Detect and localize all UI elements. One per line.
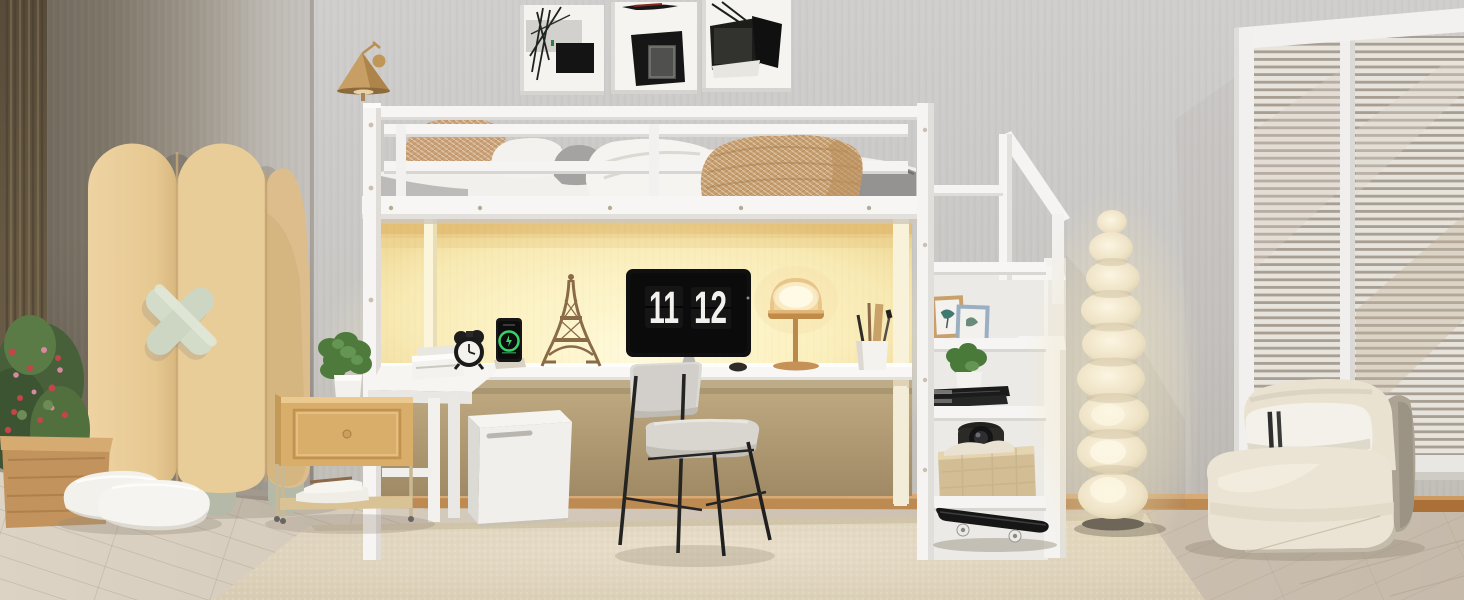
svg-text:11: 11 bbox=[649, 282, 679, 333]
svg-text:12: 12 bbox=[694, 282, 727, 333]
